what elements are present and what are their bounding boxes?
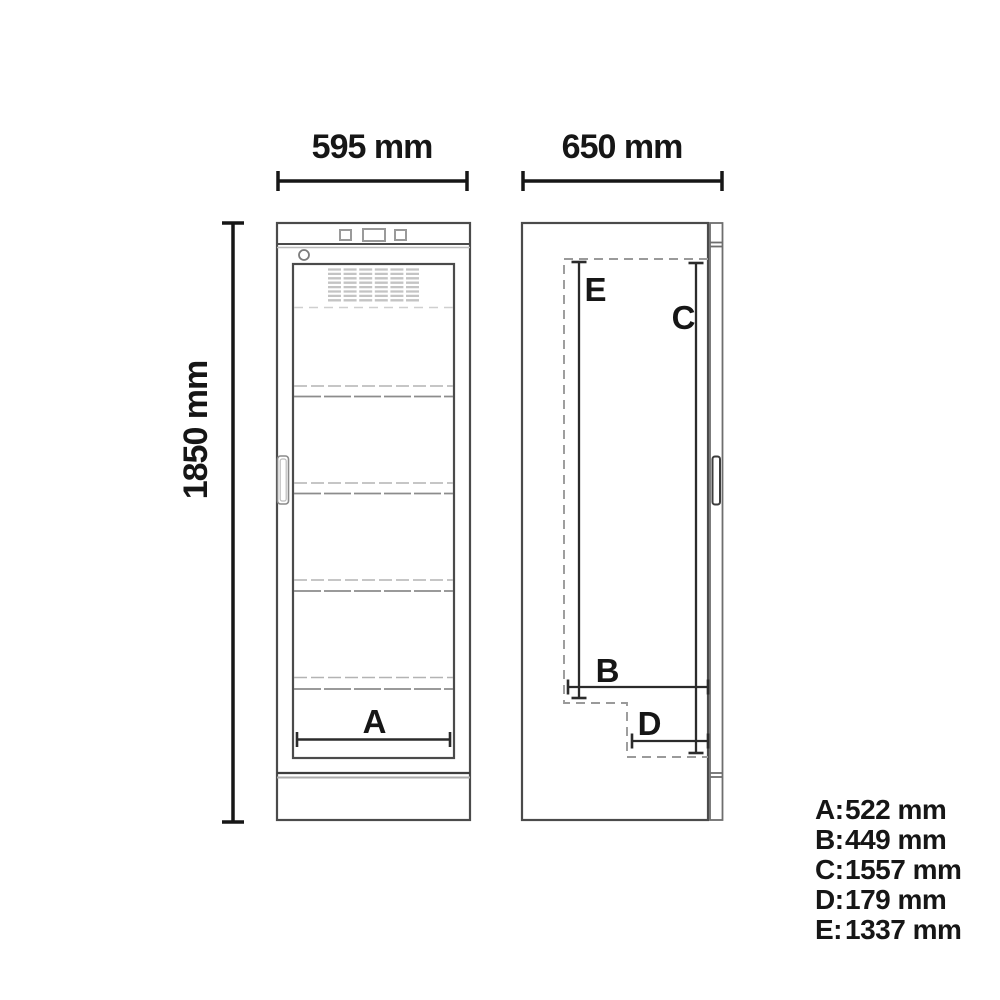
legend-key-e: E:	[815, 914, 842, 945]
legend-value-b: 449 mm	[845, 824, 946, 855]
marker-b: B	[596, 652, 619, 689]
control-button-left	[340, 230, 351, 240]
side-door-profile	[710, 223, 723, 820]
legend-row-b: B: 449 mm	[815, 824, 946, 855]
front-view: A	[277, 223, 470, 820]
control-display	[363, 229, 385, 241]
front-glass-door-frame	[293, 264, 454, 758]
legend-value-e: 1337 mm	[845, 914, 961, 945]
legend-row-d: D: 179 mm	[815, 884, 946, 915]
depth-dimension: 650 mm	[523, 128, 722, 191]
height-dimension: 1850 mm	[177, 223, 244, 822]
fridge-dimension-diagram: 595 mm 650 mm 1850 mm	[0, 0, 1000, 1000]
legend: A: 522 mm B: 449 mm C: 1557 mm D: 179 mm…	[815, 794, 961, 945]
width-dimension: 595 mm	[278, 128, 467, 191]
control-button-right	[395, 230, 406, 240]
legend-value-c: 1557 mm	[845, 854, 961, 885]
legend-value-a: 522 mm	[845, 794, 946, 825]
door-lock-icon	[299, 250, 309, 260]
legend-key-b: B:	[815, 824, 844, 855]
legend-row-e: E: 1337 mm	[815, 914, 961, 945]
diagram-canvas: 595 mm 650 mm 1850 mm	[0, 0, 1000, 1000]
legend-row-c: C: 1557 mm	[815, 854, 961, 885]
width-dimension-label: 595 mm	[312, 128, 433, 166]
marker-d: D	[638, 705, 661, 742]
depth-dimension-label: 650 mm	[562, 128, 683, 166]
legend-row-a: A: 522 mm	[815, 794, 946, 825]
legend-key-a: A:	[815, 794, 844, 825]
marker-c: C	[672, 299, 695, 336]
height-dimension-label: 1850 mm	[177, 361, 215, 500]
marker-e: E	[584, 271, 605, 308]
legend-key-d: D:	[815, 884, 844, 915]
front-door-handle	[278, 456, 289, 504]
legend-value-d: 179 mm	[845, 884, 946, 915]
side-view: E C B D	[522, 223, 723, 820]
side-door-handle	[713, 457, 721, 505]
marker-a: A	[363, 703, 386, 740]
legend-key-c: C:	[815, 854, 844, 885]
